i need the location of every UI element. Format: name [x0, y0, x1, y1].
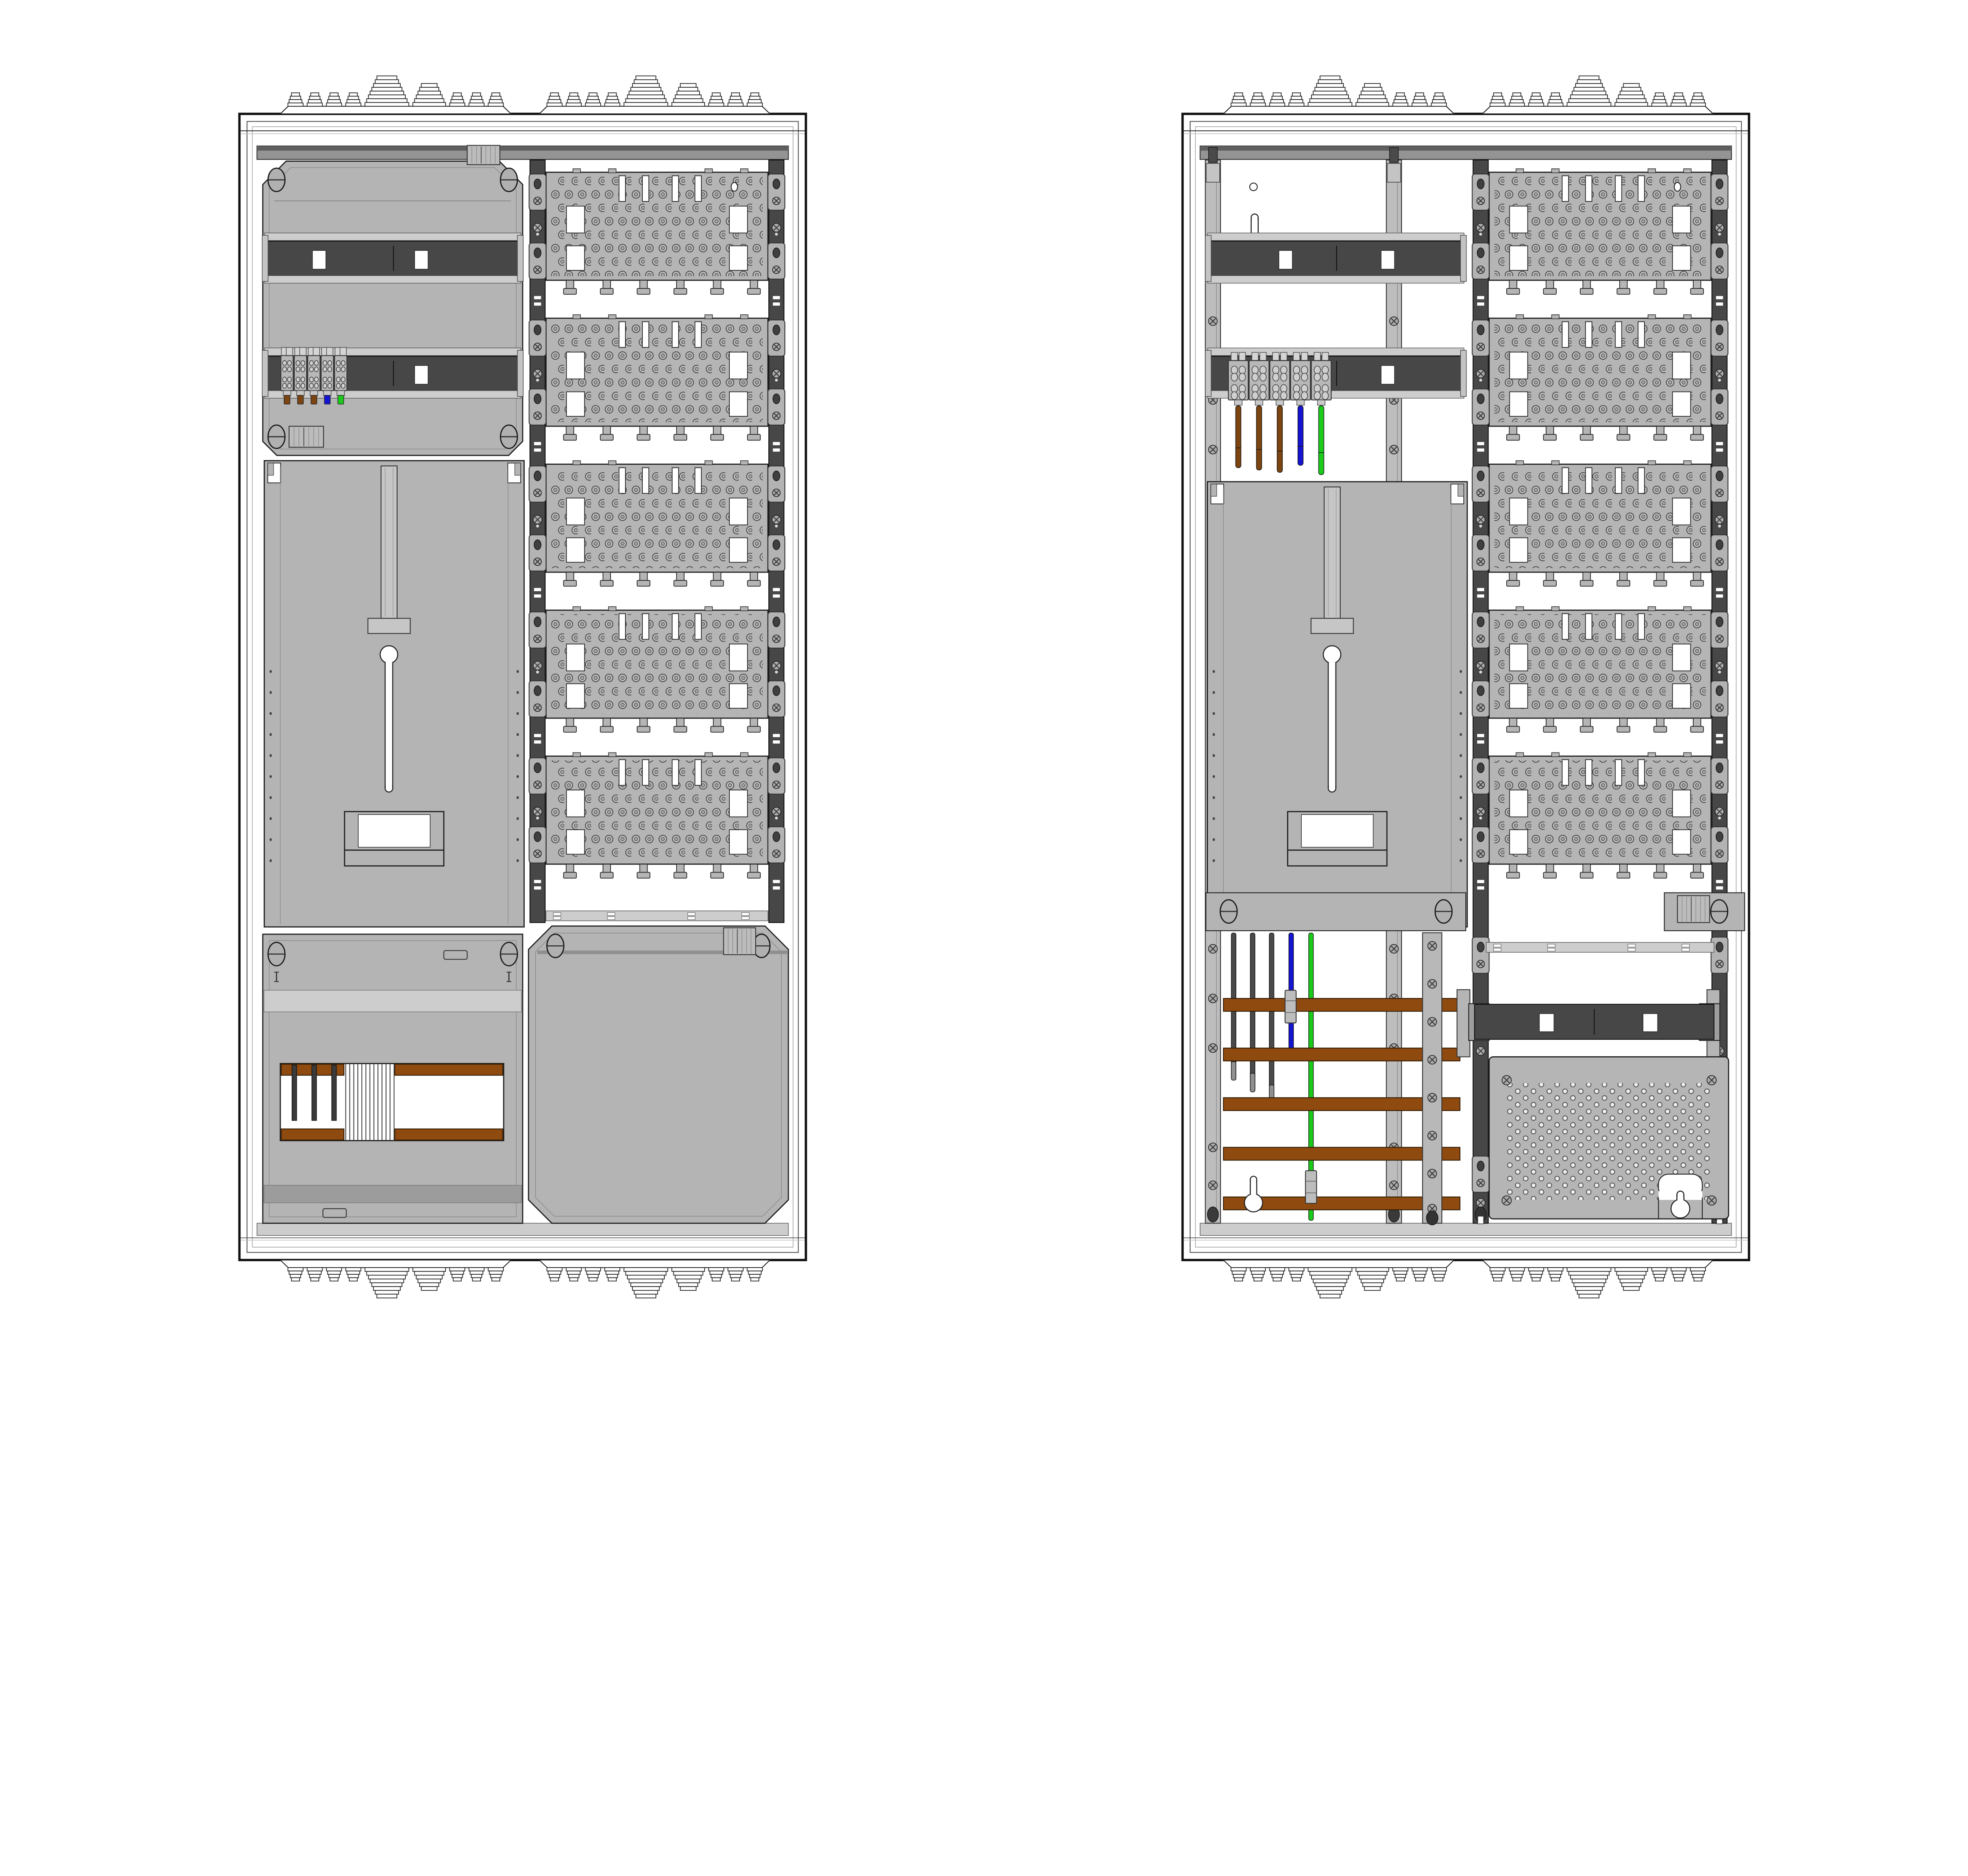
vent-step — [327, 1271, 340, 1275]
terminal-tab — [1231, 352, 1237, 361]
vent-step — [1433, 1274, 1444, 1278]
plate-tab-foot — [747, 726, 760, 732]
feeder-wire-black — [1250, 933, 1255, 1092]
plate-top-notch — [1552, 752, 1559, 756]
bottom-frame-strip — [257, 1223, 788, 1235]
vent-step — [414, 1272, 444, 1275]
plate-slot — [619, 614, 625, 639]
connection-pin — [292, 1065, 297, 1120]
drawing-detail — [1458, 484, 1464, 496]
bottom-frame-strip — [1200, 1223, 1731, 1235]
plate-tab-foot — [1617, 580, 1630, 586]
edge-hole — [270, 775, 272, 778]
terminal-hole — [1260, 384, 1266, 392]
vent-step — [748, 100, 761, 103]
vent-step — [421, 83, 437, 87]
plate-tab-foot — [1580, 288, 1593, 294]
vent-step — [747, 103, 762, 106]
terminal-hole — [296, 367, 300, 372]
clip-hole — [534, 248, 541, 258]
vent-step — [1359, 1275, 1385, 1279]
terminal-hole — [1239, 373, 1245, 381]
rail-hole — [1479, 525, 1482, 527]
plate-tab-stem — [1546, 426, 1554, 435]
vent-step — [308, 1271, 321, 1275]
terminal-hole — [1231, 366, 1237, 374]
terminal-tab — [1239, 352, 1245, 361]
edge-hole — [1213, 691, 1215, 694]
edge-hole — [516, 817, 519, 820]
terminal-hole — [301, 367, 305, 372]
vent-step — [470, 100, 483, 103]
rail-slot — [1716, 734, 1723, 737]
top-frame-strip-dark — [1200, 146, 1731, 151]
vent-step — [1290, 100, 1303, 103]
vent-step — [1361, 91, 1384, 95]
vent-step — [1234, 96, 1244, 100]
plate-slot — [672, 760, 679, 785]
vent-step — [626, 1272, 666, 1275]
vent-step — [290, 96, 301, 100]
plate-tab-foot — [711, 872, 724, 878]
vent-step — [1361, 1279, 1384, 1283]
rail-slot — [773, 594, 780, 597]
vent-step — [589, 93, 597, 96]
plate-slot — [1585, 614, 1592, 639]
plate-tab-foot — [747, 434, 760, 440]
rail-slot — [534, 594, 541, 597]
plate-window — [729, 538, 747, 562]
din-rail-end-bracket — [1205, 350, 1211, 396]
wire-brown — [1277, 406, 1282, 472]
vent-step — [1654, 1274, 1665, 1278]
plate-top-notch — [1516, 752, 1524, 756]
mounting-hole — [1674, 183, 1681, 191]
plate-tab-stem — [566, 426, 573, 435]
vent-step — [749, 96, 760, 100]
vent-step — [633, 1286, 659, 1290]
edge-hole — [1213, 754, 1215, 757]
wire-stub-blue — [324, 395, 330, 404]
edge-hole — [1459, 754, 1462, 757]
rail-hole — [536, 233, 539, 235]
clip-hole — [1477, 325, 1484, 335]
drawing-detail — [268, 463, 274, 475]
vent-platform — [1223, 106, 1454, 114]
terminal-hole — [328, 377, 332, 382]
plate-tab-stem — [677, 572, 684, 581]
meter-mounting-plate — [1208, 482, 1467, 927]
vent-step — [490, 1274, 501, 1278]
rail-hole — [1718, 379, 1721, 381]
vent-step — [607, 96, 618, 100]
plate-slot — [1585, 176, 1592, 201]
vent-step — [368, 1275, 405, 1279]
terminal-hole — [309, 383, 313, 388]
vent-step — [730, 1274, 741, 1278]
vent-step — [1509, 103, 1525, 106]
wire-stub-brown — [311, 395, 317, 404]
vent-step — [747, 1268, 762, 1271]
vent-step — [568, 1274, 579, 1278]
wire-brown — [1236, 406, 1241, 468]
vent-step — [472, 1278, 481, 1281]
vent-step — [588, 1274, 598, 1278]
plate-tab-stem — [750, 572, 758, 581]
terminal-tab — [1260, 352, 1266, 361]
terminal-hole — [314, 383, 318, 388]
vent-step — [627, 95, 664, 99]
vent-step — [1235, 1278, 1243, 1281]
rail-hole — [775, 525, 778, 527]
wire-blue — [1298, 406, 1303, 465]
terminal-foot — [1276, 400, 1284, 405]
terminal-hole — [1314, 366, 1321, 374]
vent-step — [1615, 102, 1648, 106]
plate-top-notch — [1683, 752, 1691, 756]
vent-step — [349, 1278, 357, 1281]
rail-slot — [773, 880, 780, 883]
terminal-hole — [1322, 384, 1328, 392]
plate-window — [566, 538, 584, 562]
vent-step — [675, 1275, 701, 1279]
plate-tab-stem — [1620, 280, 1627, 289]
edge-hole — [516, 712, 519, 715]
plate-tab-foot — [1617, 872, 1630, 878]
vent-step — [679, 1283, 698, 1287]
clip-hole — [1716, 942, 1723, 952]
meter-cabinet-technical-drawing — [0, 0, 1968, 1392]
plate-top-notch — [1516, 461, 1524, 465]
plate-slot — [642, 760, 649, 785]
vent-step — [1231, 103, 1247, 106]
drawing-detail — [1548, 944, 1555, 947]
clip-hole — [773, 179, 780, 189]
plate-tab-foot — [564, 434, 577, 440]
plate-tab-foot — [1543, 872, 1556, 878]
plate-slot — [1615, 468, 1622, 493]
plate-tab-stem — [640, 572, 647, 581]
top-bracket — [1206, 163, 1220, 182]
plate-tab-foot — [564, 288, 577, 294]
vent-step — [1512, 1274, 1522, 1278]
vent-platform — [1223, 1260, 1454, 1268]
plate-tab-foot — [564, 726, 577, 732]
plate-window — [566, 246, 584, 270]
vent-step — [1252, 1271, 1265, 1275]
plate-tab-foot — [674, 434, 687, 440]
edge-hole — [1459, 775, 1462, 778]
vent-step — [1671, 1268, 1687, 1271]
rail-slot — [534, 740, 541, 743]
drawing-detail — [386, 784, 392, 788]
vent-step — [368, 95, 405, 99]
terminal-hole — [309, 377, 313, 382]
terminal-tab — [1252, 352, 1258, 361]
connection-pin — [312, 1065, 316, 1120]
plate-tab-stem — [1620, 426, 1627, 435]
vent-step — [329, 96, 339, 100]
clip-hole — [534, 471, 541, 481]
vent-step — [1272, 1274, 1282, 1278]
plate-tab-foot — [637, 288, 650, 294]
vent-step — [1358, 1272, 1387, 1275]
din-bracket — [1457, 990, 1470, 1057]
plate-tab-stem — [713, 426, 721, 435]
busbar — [395, 1064, 503, 1075]
plate-tab-stem — [1656, 864, 1664, 873]
drawing-detail — [688, 913, 695, 915]
vent-step — [1235, 93, 1243, 96]
vent-step — [1313, 91, 1347, 95]
rail-slot — [773, 296, 780, 299]
plate-window — [1672, 246, 1691, 270]
plate-tab-foot — [1580, 434, 1593, 440]
vent-step — [1570, 95, 1607, 99]
vent-step — [290, 1274, 301, 1278]
plate-top-notch — [705, 461, 712, 465]
edge-hole — [1213, 712, 1215, 715]
vent-step — [1572, 1279, 1605, 1283]
plate-tab-foot — [1617, 434, 1630, 440]
plate-top-notch — [609, 169, 616, 173]
vent-step — [1493, 96, 1503, 100]
plate-top-notch — [705, 607, 712, 611]
vent-step — [588, 96, 598, 100]
vent-step — [629, 1279, 662, 1283]
vent-step — [547, 1268, 562, 1271]
clip-hole — [534, 325, 541, 335]
plate-tab-foot — [1507, 726, 1520, 732]
vent-step — [1618, 95, 1644, 99]
terminal-hole — [283, 367, 287, 372]
plate-top-notch — [1648, 607, 1655, 611]
vent-step — [288, 1268, 303, 1271]
plate-tab-stem — [1509, 572, 1517, 581]
plate-tab-foot — [637, 580, 650, 586]
wire-green — [1319, 406, 1324, 475]
plate-tab-foot — [564, 872, 577, 878]
rail-slot — [1716, 588, 1723, 591]
plate-window — [1672, 206, 1691, 233]
drawing-detail — [1548, 948, 1555, 951]
vent-step — [490, 96, 501, 100]
clip-hole — [1477, 540, 1484, 550]
terminal-hole — [1281, 384, 1287, 392]
vent-step — [1272, 96, 1282, 100]
terminal-hole — [341, 383, 345, 388]
terminal-tab — [1322, 352, 1328, 361]
clip-hole — [1477, 942, 1484, 952]
plate-tab-foot — [1691, 288, 1704, 294]
plate-tab-foot — [747, 872, 760, 878]
terminal-hole — [1301, 392, 1308, 399]
edge-hole — [1213, 838, 1215, 841]
vent-step — [729, 1271, 742, 1275]
plate-tab-foot — [747, 580, 760, 586]
mounting-hole — [731, 183, 738, 191]
din-rail-cutout — [313, 250, 326, 269]
rail-slot — [773, 588, 780, 591]
plate-tab-foot — [1543, 288, 1556, 294]
plate-tab-stem — [713, 280, 721, 289]
perforated-mounting-plate-5 — [1489, 752, 1711, 878]
perforated-mounting-plate-3 — [546, 461, 768, 586]
vent-step — [1393, 1268, 1408, 1271]
vent-step — [712, 1278, 720, 1281]
plate-tab-foot — [1507, 872, 1520, 878]
vent-step — [418, 1279, 440, 1283]
vent-step — [550, 93, 559, 96]
vent-step — [751, 93, 759, 96]
vent-step — [1494, 1278, 1502, 1281]
plate-slot — [642, 322, 649, 347]
edge-hole — [1213, 817, 1215, 820]
edge-hole — [516, 691, 519, 694]
vent-step — [469, 1268, 484, 1271]
plate-top-notch — [1516, 607, 1524, 611]
plate-window — [1509, 538, 1528, 562]
clip-hole — [773, 686, 780, 696]
edge-hole — [270, 691, 272, 694]
vent-step — [1254, 93, 1262, 96]
plate-window — [729, 352, 747, 379]
vent-step — [1579, 1294, 1599, 1298]
wire-clamp — [1285, 990, 1296, 1023]
vent-step — [1396, 1278, 1405, 1281]
plate-tab-foot — [600, 580, 613, 586]
plate-tab-stem — [1546, 572, 1554, 581]
drawing-detail — [1494, 944, 1501, 947]
vent-step — [289, 100, 302, 103]
plate-tab-stem — [603, 718, 610, 727]
perforated-mounting-plate-2 — [546, 315, 768, 440]
vent-step — [570, 1278, 578, 1281]
plate-tab-foot — [1654, 872, 1667, 878]
vent-step — [589, 1278, 597, 1281]
vent-step — [1691, 100, 1704, 103]
vent-step — [1530, 1271, 1543, 1275]
plate-slot — [672, 614, 679, 639]
plate-top-notch — [705, 169, 712, 173]
drawing-detail — [688, 917, 695, 919]
clip-hole — [1477, 394, 1484, 404]
vent-step — [367, 1272, 407, 1275]
rail-slot — [1716, 740, 1723, 743]
plate-slot — [1585, 760, 1592, 785]
vent-step — [307, 103, 322, 106]
plate-tab-stem — [750, 718, 758, 727]
plate-tab-stem — [1656, 572, 1664, 581]
vent-step — [1250, 103, 1266, 106]
clip-hole — [773, 394, 780, 404]
terminal-hole — [1322, 373, 1328, 381]
clip-hole — [534, 617, 541, 627]
rail-hole — [1479, 379, 1482, 381]
rail-hole — [775, 817, 778, 819]
vent-step — [1415, 1274, 1425, 1278]
plate-slot — [619, 322, 625, 347]
plate-tab-stem — [1693, 718, 1701, 727]
plate-top-notch — [1683, 169, 1691, 173]
perforated-mounting-plate-3 — [1489, 461, 1711, 586]
vent-step — [289, 1271, 302, 1275]
terminal-hole — [296, 377, 300, 382]
vent-step — [567, 100, 580, 103]
rail-slot — [773, 448, 780, 451]
plate-window — [1509, 392, 1528, 416]
terminal-hole — [1231, 373, 1237, 381]
terminal-hole — [1273, 392, 1279, 399]
plate-tab-stem — [603, 572, 610, 581]
plate-top-notch — [573, 752, 580, 756]
edge-hole — [270, 733, 272, 736]
vent-step — [1273, 1278, 1281, 1281]
plate-tab-stem — [1583, 426, 1591, 435]
vent-step — [453, 93, 461, 96]
busbar — [395, 1129, 503, 1140]
terminal-hole — [1293, 366, 1300, 374]
support-bar — [1486, 943, 1714, 952]
rail-hole — [1718, 233, 1721, 235]
terminal-hole — [1314, 392, 1321, 399]
terminal-hole — [1301, 373, 1308, 381]
plate-slot — [1615, 322, 1622, 347]
vent-step — [677, 91, 699, 95]
plate-tab-stem — [1509, 864, 1517, 873]
plate-tab-stem — [1583, 718, 1591, 727]
vent-step — [1271, 100, 1284, 103]
vent-step — [1432, 100, 1445, 103]
plate-top-notch — [1516, 169, 1524, 173]
rail-slot — [1716, 886, 1723, 889]
plate-tab-foot — [1691, 872, 1704, 878]
drawing-detail — [1252, 218, 1258, 222]
edge-hole — [270, 712, 272, 715]
edge-hole — [516, 754, 519, 757]
vent-step — [566, 103, 581, 106]
din-rail-cutout — [414, 250, 428, 269]
top-hook — [1208, 148, 1217, 163]
vent-step — [1694, 1278, 1702, 1281]
plate-tab-stem — [640, 426, 647, 435]
vent-step — [308, 100, 321, 103]
plate-slot — [619, 760, 625, 785]
plate-tab-foot — [1691, 580, 1704, 586]
clip-hole — [1716, 540, 1723, 550]
plate-top-notch — [573, 607, 580, 611]
vent-step — [1292, 1278, 1300, 1281]
vent-step — [608, 93, 616, 96]
vent-step — [377, 76, 397, 80]
wire-stub-green — [338, 395, 344, 404]
plate-top-notch — [740, 607, 748, 611]
plate-slot — [619, 176, 625, 201]
plate-tab-foot — [1654, 434, 1667, 440]
vent-step — [1615, 1268, 1648, 1272]
vent-step — [672, 102, 705, 106]
edge-hole — [1459, 691, 1462, 694]
terminal-hole — [287, 377, 291, 382]
terminal-hole — [341, 360, 345, 365]
vent-step — [1570, 1275, 1607, 1279]
rail-slot — [534, 296, 541, 299]
vent-step — [712, 93, 720, 96]
vent-step — [1365, 1286, 1380, 1290]
cover-dark-strip — [264, 1185, 522, 1203]
rail-hole — [536, 671, 539, 673]
clip-hole — [1716, 617, 1723, 627]
